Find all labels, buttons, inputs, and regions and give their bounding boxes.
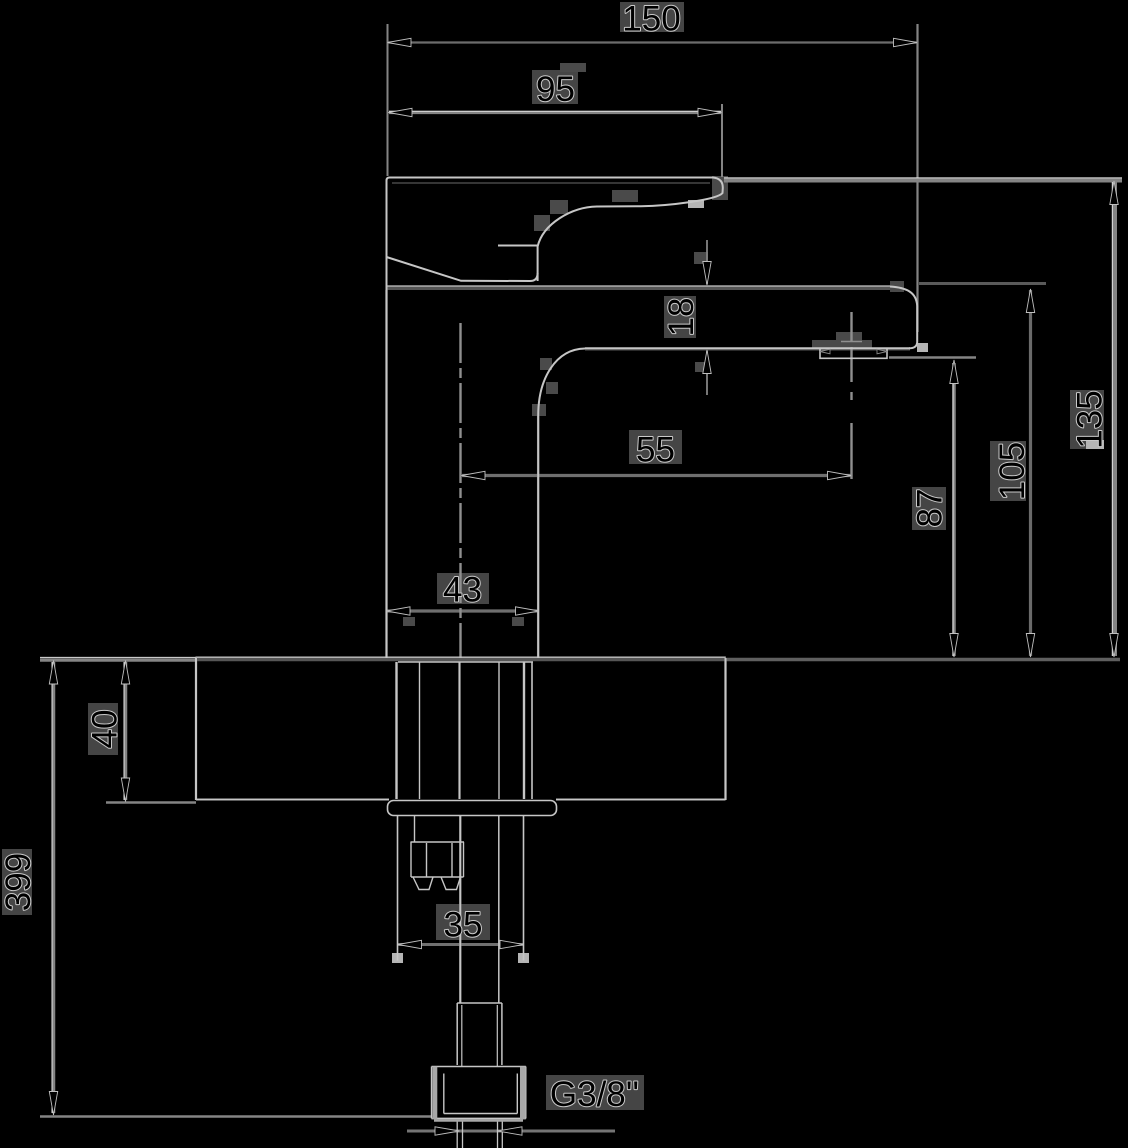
- svg-text:55: 55: [636, 431, 675, 470]
- svg-text:135: 135: [1071, 390, 1110, 448]
- svg-text:399: 399: [0, 853, 38, 911]
- svg-text:150: 150: [622, 0, 680, 39]
- svg-text:35: 35: [444, 906, 483, 945]
- svg-text:18: 18: [662, 298, 701, 337]
- svg-text:105: 105: [993, 442, 1032, 500]
- svg-text:43: 43: [443, 571, 482, 610]
- svg-text:40: 40: [86, 710, 125, 749]
- svg-text:87: 87: [911, 489, 950, 528]
- svg-text:95: 95: [536, 70, 575, 109]
- svg-text:G3/8'': G3/8'': [550, 1075, 639, 1114]
